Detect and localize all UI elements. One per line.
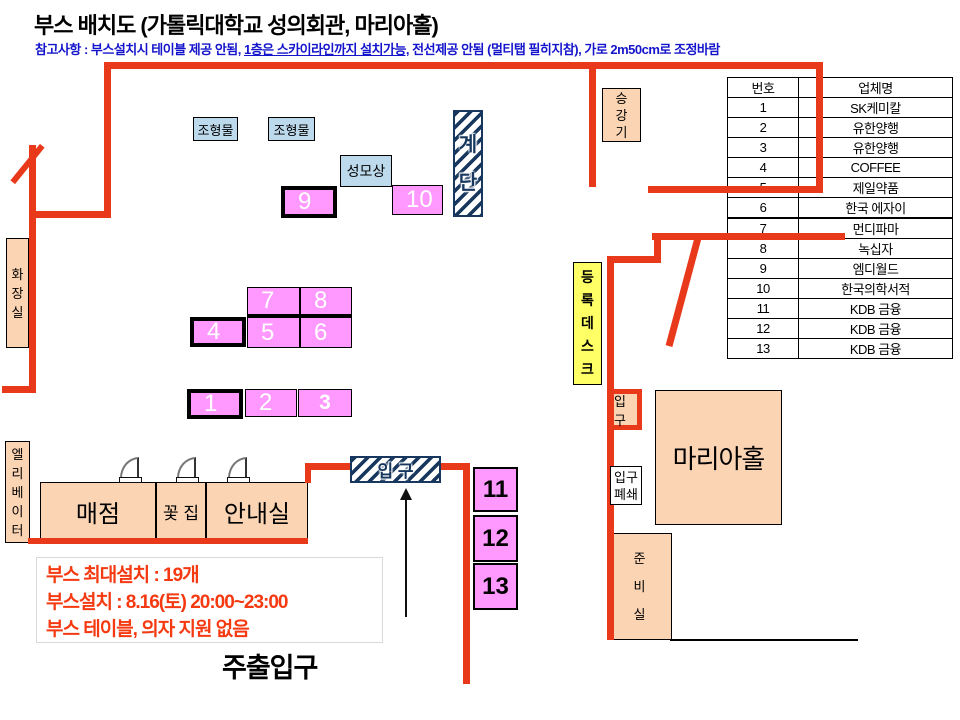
cell-no: 10 — [728, 278, 799, 298]
cell-no: 9 — [728, 258, 799, 278]
wall-line-right-diagonal — [666, 237, 702, 347]
cell-name: 한국의학서적 — [799, 278, 953, 298]
prep-room-box: 준비실 — [607, 533, 672, 640]
cell-name: 한국 에자이 — [799, 197, 953, 218]
main-entrance-label: 주출입구 — [222, 646, 317, 685]
table-row: 4COFFEE — [728, 158, 953, 178]
cell-no: 11 — [728, 298, 799, 318]
wall-line-top — [104, 62, 823, 69]
registration-desk-label: 등록데스크 — [581, 266, 595, 381]
maria-hall-box: 마리아홀 — [655, 390, 782, 525]
cell-no: 12 — [728, 318, 799, 338]
wall-line-shops-bottom — [28, 538, 308, 544]
cell-no: 3 — [728, 138, 799, 158]
stairs-label: 계단 — [458, 126, 478, 202]
booth-7: 7 — [247, 287, 300, 317]
booth-5: 5 — [247, 317, 300, 348]
booth-9: 9 — [281, 186, 337, 218]
company-table: 번호 업체명 1SK케미칼 2유한양행 3유한양행 4COFFEE 5제일약품 … — [727, 77, 953, 359]
booth-2: 2 — [245, 389, 297, 417]
store-box: 매점 — [40, 482, 156, 541]
door-icon — [119, 457, 143, 484]
booth-4: 4 — [190, 317, 246, 347]
note-mid: 전선제공 안됨 — [409, 42, 487, 57]
direction-arrow-head — [400, 488, 412, 500]
wall-line-left-lower — [29, 145, 36, 392]
entrance-hatched-box: 입 구 — [350, 456, 441, 483]
cell-no: 13 — [728, 338, 799, 358]
sculpture-box-2: 조형물 — [268, 117, 315, 141]
door-icon — [176, 457, 200, 484]
restroom-box: 화장실 — [6, 238, 29, 348]
entrance-hatched-label: 입 구 — [377, 457, 413, 482]
table-row: 11KDB 금융 — [728, 298, 953, 318]
notice-line-1: 부스 최대설치 : 19개 — [46, 562, 382, 589]
table-row: 6한국 에자이 — [728, 197, 953, 218]
wall-line-left-h — [33, 211, 111, 218]
elevator-top-box: 승강기 — [602, 88, 641, 142]
entrance-closed-box: 입구 폐쇄 — [610, 466, 642, 505]
booth-6: 6 — [300, 317, 352, 348]
entrance-red-box: 입구 — [609, 389, 642, 430]
wall-line-step-h — [607, 256, 661, 263]
cell-name: 엠디월드 — [799, 258, 953, 278]
wall-line-mid-vertical — [589, 62, 596, 187]
cell-name: KDB 금융 — [799, 338, 953, 358]
note-underlined: 1층은 스카이라인까지 설치가능, — [244, 42, 409, 57]
note-suffix: , 가로 2m50cm로 조정바람 — [578, 42, 720, 57]
table-row: 9엠디월드 — [728, 258, 953, 278]
wall-line-left-bottom — [2, 386, 36, 393]
info-room-box: 안내실 — [206, 482, 308, 541]
elevator-left-box: 엘리베이터 — [5, 441, 30, 543]
stairs-box: 계단 — [453, 110, 483, 217]
booth-12: 12 — [473, 515, 518, 562]
registration-desk-box: 등록데스크 — [573, 262, 602, 385]
notice-box: 부스 최대설치 : 19개 부스설치 : 8.16(토) 20:00~23:00… — [36, 557, 383, 643]
note-line: 참고사항 : 부스설치시 테이블 제공 안됨, 1층은 스카이라인까지 설치가능… — [35, 39, 720, 58]
flower-shop-box: 꽃 집 — [156, 482, 206, 541]
table-row: 10한국의학서적 — [728, 278, 953, 298]
table-row: 3유한양행 — [728, 138, 953, 158]
booth-10: 10 — [392, 185, 443, 215]
bottom-right-wall-line — [670, 639, 858, 641]
notice-line-2: 부스설치 : 8.16(토) 20:00~23:00 — [46, 589, 382, 616]
note-prefix: 참고사항 : 부스설치시 테이블 제공 안됨, — [35, 42, 244, 57]
booth-13: 13 — [473, 563, 518, 610]
wall-line-table-vertical — [816, 62, 823, 193]
booth-3: 3 — [298, 389, 352, 417]
elevator-left-label: 엘리베이터 — [11, 445, 24, 540]
cell-name: KDB 금융 — [799, 318, 953, 338]
direction-arrow-line — [405, 499, 407, 617]
wall-line-left-diagonal — [10, 144, 44, 184]
table-row: 8녹십자 — [728, 238, 953, 258]
door-icon — [227, 457, 251, 484]
table-row: 13KDB 금융 — [728, 338, 953, 358]
cell-name: KDB 금융 — [799, 298, 953, 318]
wall-line-right-vertical — [607, 256, 614, 640]
wall-line-bottom-vertical — [463, 463, 470, 684]
prep-room-label: 준비실 — [633, 545, 646, 629]
wall-line-table-h1 — [648, 186, 823, 193]
sculpture-box-1: 조형물 — [193, 117, 238, 141]
cell-no: 4 — [728, 158, 799, 178]
table-row: 12KDB 금융 — [728, 318, 953, 338]
elevator-top-label: 승강기 — [615, 90, 628, 141]
cell-no: 6 — [728, 197, 799, 218]
mary-statue-box: 성모상 — [340, 155, 392, 187]
cell-name: 녹십자 — [799, 238, 953, 258]
booth-1: 1 — [187, 389, 243, 419]
table-row: 1SK케미칼 — [728, 98, 953, 118]
col-header-no: 번호 — [728, 78, 799, 98]
restroom-label: 화장실 — [11, 265, 24, 322]
booth-8: 8 — [300, 287, 352, 317]
floor-plan-slide: 부스 배치도 (가톨릭대학교 성의회관, 마리아홀) 참고사항 : 부스설치시 … — [0, 0, 960, 720]
booth-11: 11 — [473, 467, 518, 512]
cell-no: 8 — [728, 238, 799, 258]
wall-line-table-h2 — [652, 233, 845, 240]
table-header-row: 번호 업체명 — [728, 78, 953, 98]
wall-line-entrance-left — [305, 463, 352, 470]
page-title: 부스 배치도 (가톨릭대학교 성의회관, 마리아홀) — [34, 8, 438, 40]
cell-no: 1 — [728, 98, 799, 118]
note-bold: (멀티탭 필히지참) — [487, 42, 578, 57]
wall-line-left-upper — [104, 62, 111, 218]
table-row: 2유한양행 — [728, 118, 953, 138]
cell-no: 2 — [728, 118, 799, 138]
notice-line-3: 부스 테이블, 의자 지원 없음 — [46, 616, 382, 643]
wall-line-entrance-step — [305, 463, 311, 483]
